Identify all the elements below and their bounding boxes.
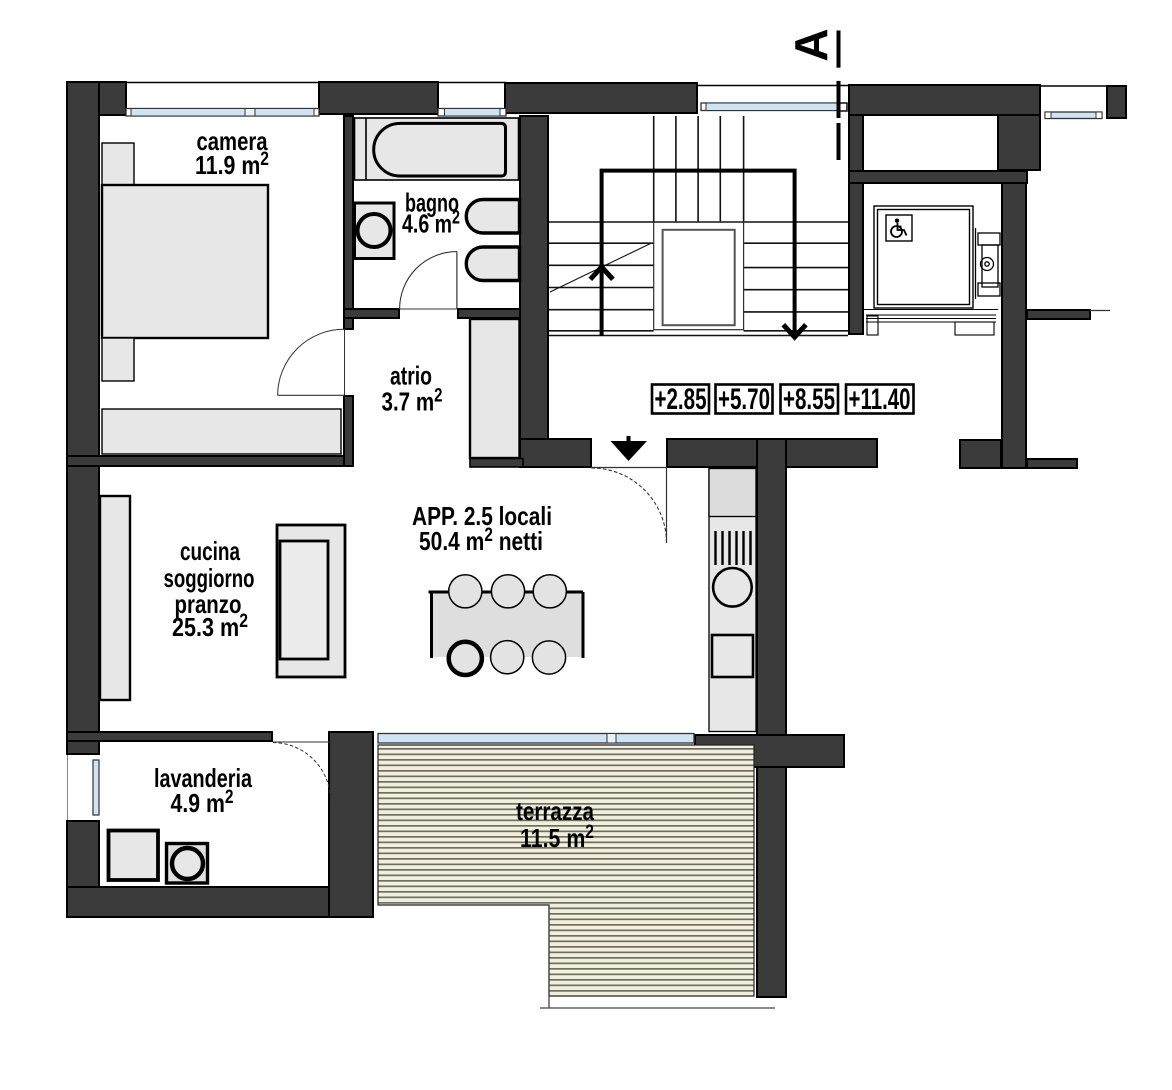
svg-text:terrazza: terrazza	[516, 796, 594, 826]
svg-text:25.3 m2: 25.3 m2	[172, 611, 248, 642]
svg-text:+2.85: +2.85	[655, 383, 707, 416]
svg-text:11.5 m2: 11.5 m2	[520, 822, 594, 853]
svg-text:+5.70: +5.70	[718, 383, 770, 416]
svg-text:A: A	[785, 28, 837, 61]
svg-text:4.6 m2: 4.6 m2	[402, 208, 460, 239]
svg-text:+8.55: +8.55	[783, 383, 835, 416]
svg-text:3.7 m2: 3.7 m2	[382, 386, 443, 417]
svg-text:4.9 m2: 4.9 m2	[171, 787, 234, 818]
svg-text:cucina: cucina	[180, 536, 240, 566]
svg-text:+11.40: +11.40	[849, 383, 911, 416]
svg-text:11.9 m2: 11.9 m2	[195, 149, 269, 180]
svg-text:50.4 m2 netti: 50.4 m2 netti	[419, 525, 543, 556]
